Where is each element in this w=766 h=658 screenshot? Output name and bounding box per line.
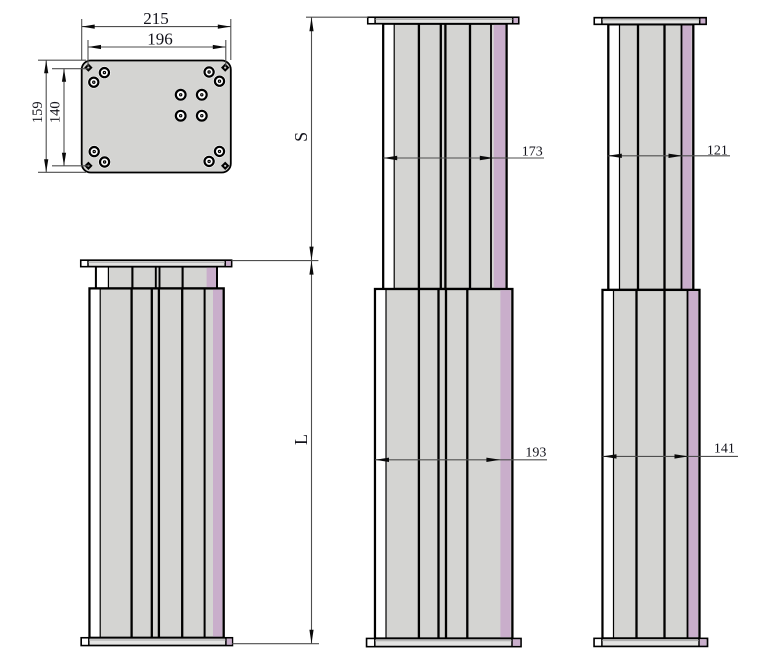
svg-text:121: 121: [707, 144, 728, 159]
svg-text:196: 196: [147, 29, 173, 48]
svg-text:215: 215: [143, 9, 169, 28]
svg-text:193: 193: [525, 446, 546, 461]
svg-text:L: L: [291, 434, 311, 445]
svg-text:159: 159: [30, 101, 46, 123]
svg-text:141: 141: [714, 441, 735, 456]
svg-text:S: S: [291, 132, 311, 142]
svg-text:173: 173: [522, 145, 543, 160]
svg-text:140: 140: [48, 101, 64, 123]
